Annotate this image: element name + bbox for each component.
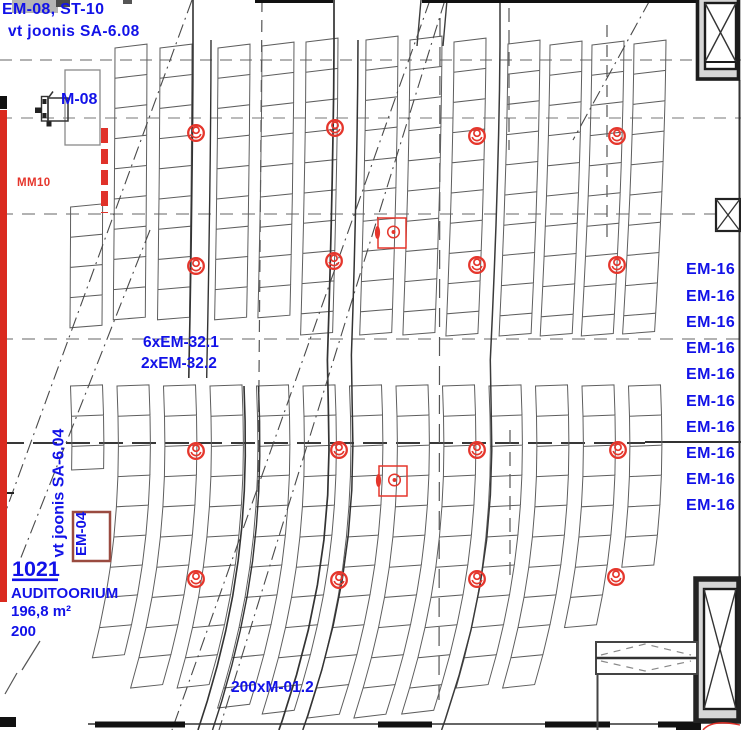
svg-text:MM10: MM10	[17, 177, 51, 189]
svg-text:200: 200	[11, 623, 36, 640]
svg-text:EM-16: EM-16	[686, 261, 735, 278]
svg-text:EM-16: EM-16	[686, 419, 735, 436]
svg-text:200xM-01.2: 200xM-01.2	[231, 679, 314, 696]
svg-text:EM-16: EM-16	[686, 445, 735, 462]
svg-text:EM-16: EM-16	[686, 497, 735, 514]
svg-text:EM-16: EM-16	[686, 393, 735, 410]
svg-text:EM-16: EM-16	[686, 288, 735, 305]
svg-text:M-08: M-08	[61, 91, 98, 108]
svg-text:EM-08, ST-10: EM-08, ST-10	[2, 1, 104, 18]
svg-text:vt joonis SA-6.08: vt joonis SA-6.08	[8, 23, 140, 40]
svg-text:AUDITOORIUM: AUDITOORIUM	[11, 585, 118, 602]
svg-text:196,8 m²: 196,8 m²	[11, 603, 71, 620]
svg-text:2xEM-32.2: 2xEM-32.2	[141, 355, 217, 372]
svg-text:6xEM-32.1: 6xEM-32.1	[143, 334, 219, 351]
svg-text:EM-16: EM-16	[686, 471, 735, 488]
svg-text:EM-16: EM-16	[686, 366, 735, 383]
svg-text:EM-16: EM-16	[686, 314, 735, 331]
svg-text:1021: 1021	[12, 557, 60, 581]
svg-text:vt joonis SA-6.04: vt joonis SA-6.04	[51, 428, 68, 557]
svg-text:EM-16: EM-16	[686, 340, 735, 357]
svg-text:EM-04: EM-04	[73, 511, 90, 556]
